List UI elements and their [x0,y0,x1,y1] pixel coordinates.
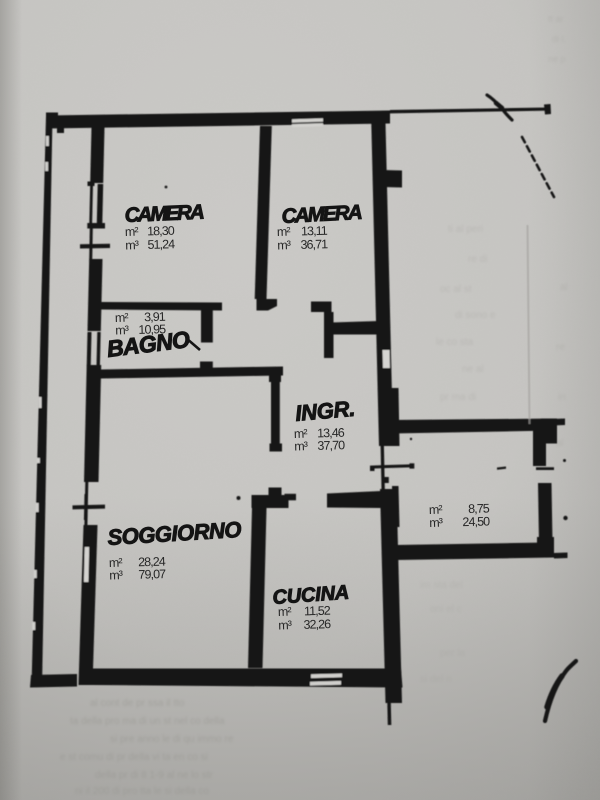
svg-text:ti al peri: ti al peri [448,224,483,235]
svg-text:m²: m² [277,225,291,239]
svg-text:pr ma di: pr ma di [440,392,476,403]
svg-text:ne p: ne p [548,54,566,64]
svg-text:ne al: ne al [462,364,484,375]
svg-text:oc al st: oc al st [440,284,472,295]
svg-text:m²: m² [278,605,292,619]
svg-text:per la: per la [440,648,465,659]
svg-text:51,24: 51,24 [147,237,175,252]
svg-text:oni el c: oni el c [430,604,462,615]
svg-text:m²: m² [125,225,139,239]
svg-text:si del n: si del n [420,674,452,685]
svg-text:m³: m³ [277,238,291,252]
svg-text:re: re [556,342,565,353]
svg-text:79,07: 79,07 [138,567,166,582]
svg-text:di sono e: di sono e [455,310,496,321]
svg-text:m³: m³ [125,238,139,252]
svg-text:24,50: 24,50 [462,514,490,529]
svg-text:m³: m³ [278,618,292,632]
svg-text:al: al [556,438,564,449]
svg-text:ta della pro ma di un st: ta della pro ma di un st nel co della [70,716,225,727]
svg-text:32,26: 32,26 [303,617,331,632]
svg-text:tt ar: tt ar [548,14,564,24]
svg-text:37,70: 37,70 [317,438,345,453]
svg-text:m³: m³ [429,516,443,530]
svg-text:36,71: 36,71 [300,237,328,252]
svg-text:im sta del: im sta del [420,580,463,591]
svg-text:in: in [558,392,566,403]
svg-text:m³: m³ [109,568,123,582]
svg-text:13,11: 13,11 [301,224,328,239]
svg-text:le co sta: le co sta [436,337,474,348]
svg-text:ni il 200 di pro tta le: ni il 200 di pro tta le si della co [75,786,209,797]
svg-text:e st comu di pr della vi: e st comu di pr della vi ta en co si [60,752,208,763]
svg-text:al: al [560,282,568,293]
svg-text:al cont de pr ssa il: al cont de pr ssa il tto [90,698,185,709]
svg-text:di l.: di l. [552,34,566,44]
svg-text:re di: re di [468,254,487,265]
svg-text:m³: m³ [294,439,308,453]
svg-text:INGR.: INGR. [294,396,356,426]
svg-text:11,52: 11,52 [304,604,331,619]
svg-text:18,30: 18,30 [147,224,175,239]
svg-text:della pr di 8 1-9 al ne: della pr di 8 1-9 al ne lo str [95,770,214,781]
svg-text:si pre anno le di qu imm: si pre anno le di qu immo re [110,734,234,745]
